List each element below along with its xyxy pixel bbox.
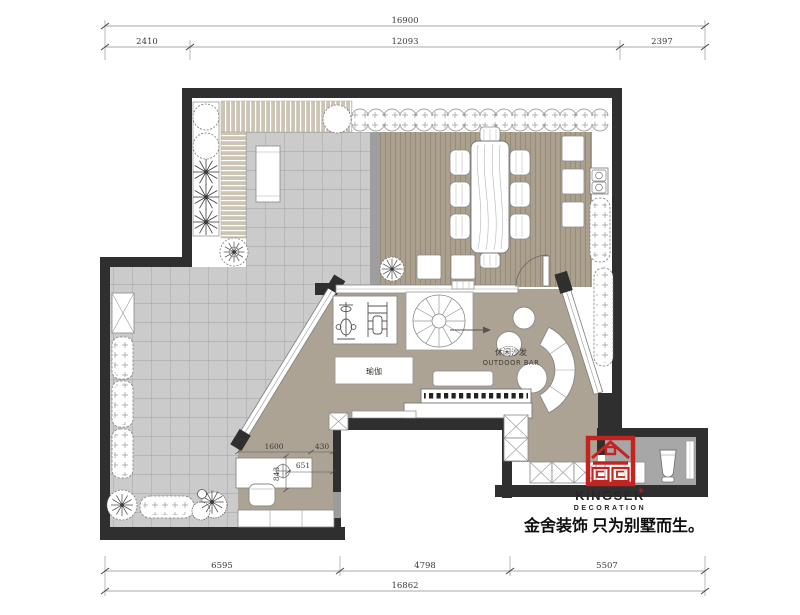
- registered-mark: ®: [638, 488, 644, 495]
- dim-study-diag: 651: [296, 461, 310, 470]
- hedge-strip: [352, 109, 608, 131]
- dimension-lines-bottom: 6595 4798 5507 16862: [101, 556, 709, 596]
- yoga-label: 瑜伽: [366, 366, 382, 376]
- ottoman: [513, 307, 535, 329]
- lounge-label-en: OUTDOOR BAR: [483, 359, 540, 367]
- floor-plan-page: 瑜伽 休闲沙发 OUTDOOR BAR: [0, 0, 800, 615]
- dim-study-depth: 843: [272, 467, 281, 482]
- dimension-lines-top: 16900 2410 12093 2397: [101, 16, 709, 60]
- dim-study-gap: 430: [315, 442, 330, 451]
- deck-corner-pot: [220, 238, 248, 266]
- ottoman: [517, 363, 547, 393]
- toilet-icon: [660, 450, 676, 482]
- tree-icon: [193, 104, 219, 130]
- lounge-label-cn: 休闲沙发: [495, 347, 527, 357]
- dim-top-seg2: 12093: [391, 37, 418, 47]
- yoga-mat: 瑜伽: [335, 357, 413, 384]
- bar-stools: [562, 136, 584, 227]
- tile-bench: [256, 146, 280, 202]
- dim-bottom-seg2: 4798: [414, 561, 436, 571]
- left-planter-box: [193, 102, 219, 236]
- floor-divider: [370, 132, 380, 287]
- corner-cabinet: [329, 413, 348, 430]
- brand-division: DECORATION: [574, 505, 647, 512]
- wall-shelf: [352, 411, 416, 418]
- desk-chair: [249, 484, 275, 506]
- dim-top-seg1: 2410: [136, 37, 158, 47]
- square-chair: [451, 255, 475, 279]
- flower-icon: [198, 490, 207, 499]
- brand-slogan: 金舍装饰 只为别墅而生。: [523, 516, 704, 535]
- dim-bottom-seg1: 6595: [211, 561, 233, 571]
- tree-icon: [323, 105, 351, 133]
- piano-bench: [433, 371, 493, 386]
- dim-bottom-seg3: 5507: [596, 561, 618, 571]
- left-wall-cabinet: [112, 293, 134, 333]
- gym-equipment: [333, 296, 397, 344]
- dining-table: [471, 141, 509, 253]
- sink-counter: [590, 168, 608, 194]
- left-wall-planters-fill: [114, 339, 131, 476]
- dim-study-width: 1600: [264, 442, 283, 451]
- dim-bottom-total: 16862: [391, 581, 418, 591]
- dim-top-seg3: 2397: [651, 37, 673, 47]
- study-cabinets: [238, 510, 334, 527]
- dim-top-total: 16900: [391, 16, 418, 26]
- tree-icon: [193, 133, 219, 159]
- floor-plan-drawing: 瑜伽 休闲沙发 OUTDOOR BAR: [0, 0, 800, 615]
- square-chair: [417, 255, 441, 279]
- brand-name: KINGSER: [575, 488, 645, 503]
